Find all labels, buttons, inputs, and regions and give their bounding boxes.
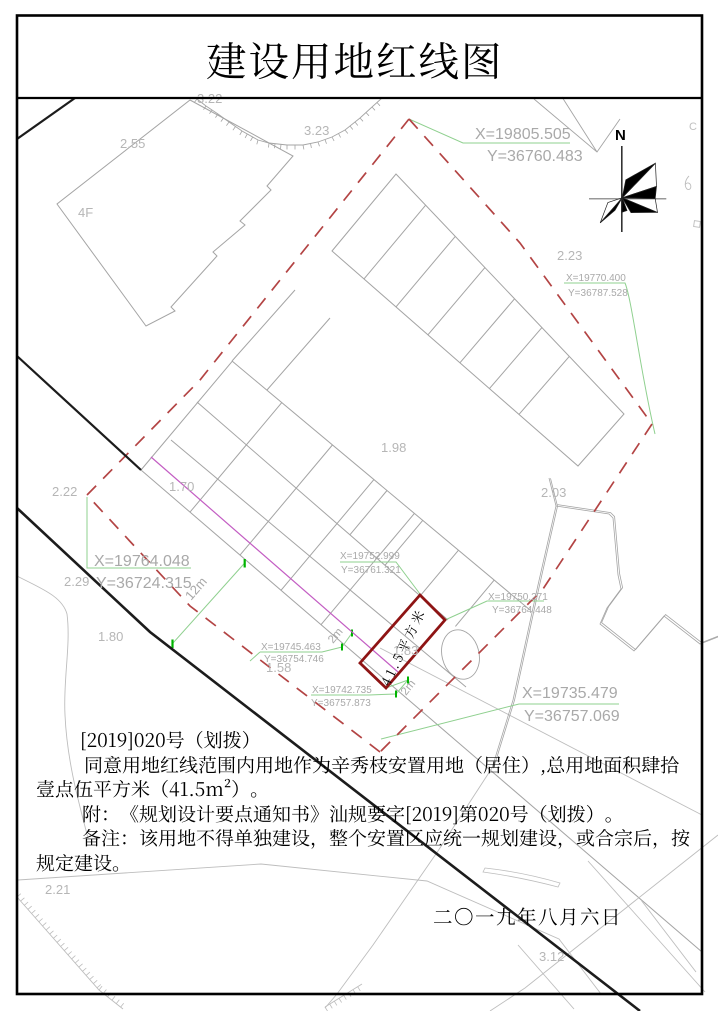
svg-text:X=19764.048: X=19764.048: [94, 553, 190, 570]
svg-text:Y=36787.528: Y=36787.528: [568, 288, 628, 299]
svg-text:Y=36761.321: Y=36761.321: [341, 565, 401, 576]
svg-text:X=19752.999: X=19752.999: [340, 551, 400, 562]
svg-text:N: N: [615, 127, 626, 144]
svg-text:C: C: [689, 121, 697, 133]
svg-text:2.21: 2.21: [45, 882, 70, 897]
svg-text:4F: 4F: [78, 205, 93, 220]
svg-text:2.22: 2.22: [52, 484, 77, 499]
svg-text:2.55: 2.55: [120, 136, 145, 151]
svg-text:1.80: 1.80: [98, 629, 123, 644]
svg-text:1.58: 1.58: [266, 660, 291, 675]
svg-text:Y=36764.448: Y=36764.448: [492, 605, 552, 616]
svg-text:X=19735.479: X=19735.479: [522, 685, 618, 702]
svg-text:3.12: 3.12: [539, 949, 564, 964]
svg-text:X=19745.463: X=19745.463: [261, 642, 321, 653]
svg-text:X=19742.735: X=19742.735: [312, 685, 372, 696]
svg-text:Y=36760.483: Y=36760.483: [487, 148, 583, 165]
svg-text:1.98: 1.98: [381, 440, 406, 455]
svg-text:Y=36724.315: Y=36724.315: [96, 575, 192, 592]
svg-text:3.23: 3.23: [304, 123, 329, 138]
svg-text:Y=36757.873: Y=36757.873: [311, 698, 371, 709]
svg-text:X=19770.400: X=19770.400: [566, 273, 626, 284]
svg-text:X=19805.505: X=19805.505: [475, 126, 571, 143]
svg-text:Y=36757.069: Y=36757.069: [524, 708, 620, 725]
svg-text:2.23: 2.23: [557, 248, 582, 263]
svg-text:1.70: 1.70: [169, 479, 194, 494]
svg-text:2.03: 2.03: [541, 485, 566, 500]
svg-text:X=19750.271: X=19750.271: [488, 592, 548, 603]
svg-text:1.83: 1.83: [393, 643, 418, 658]
svg-text:2.29: 2.29: [64, 574, 89, 589]
